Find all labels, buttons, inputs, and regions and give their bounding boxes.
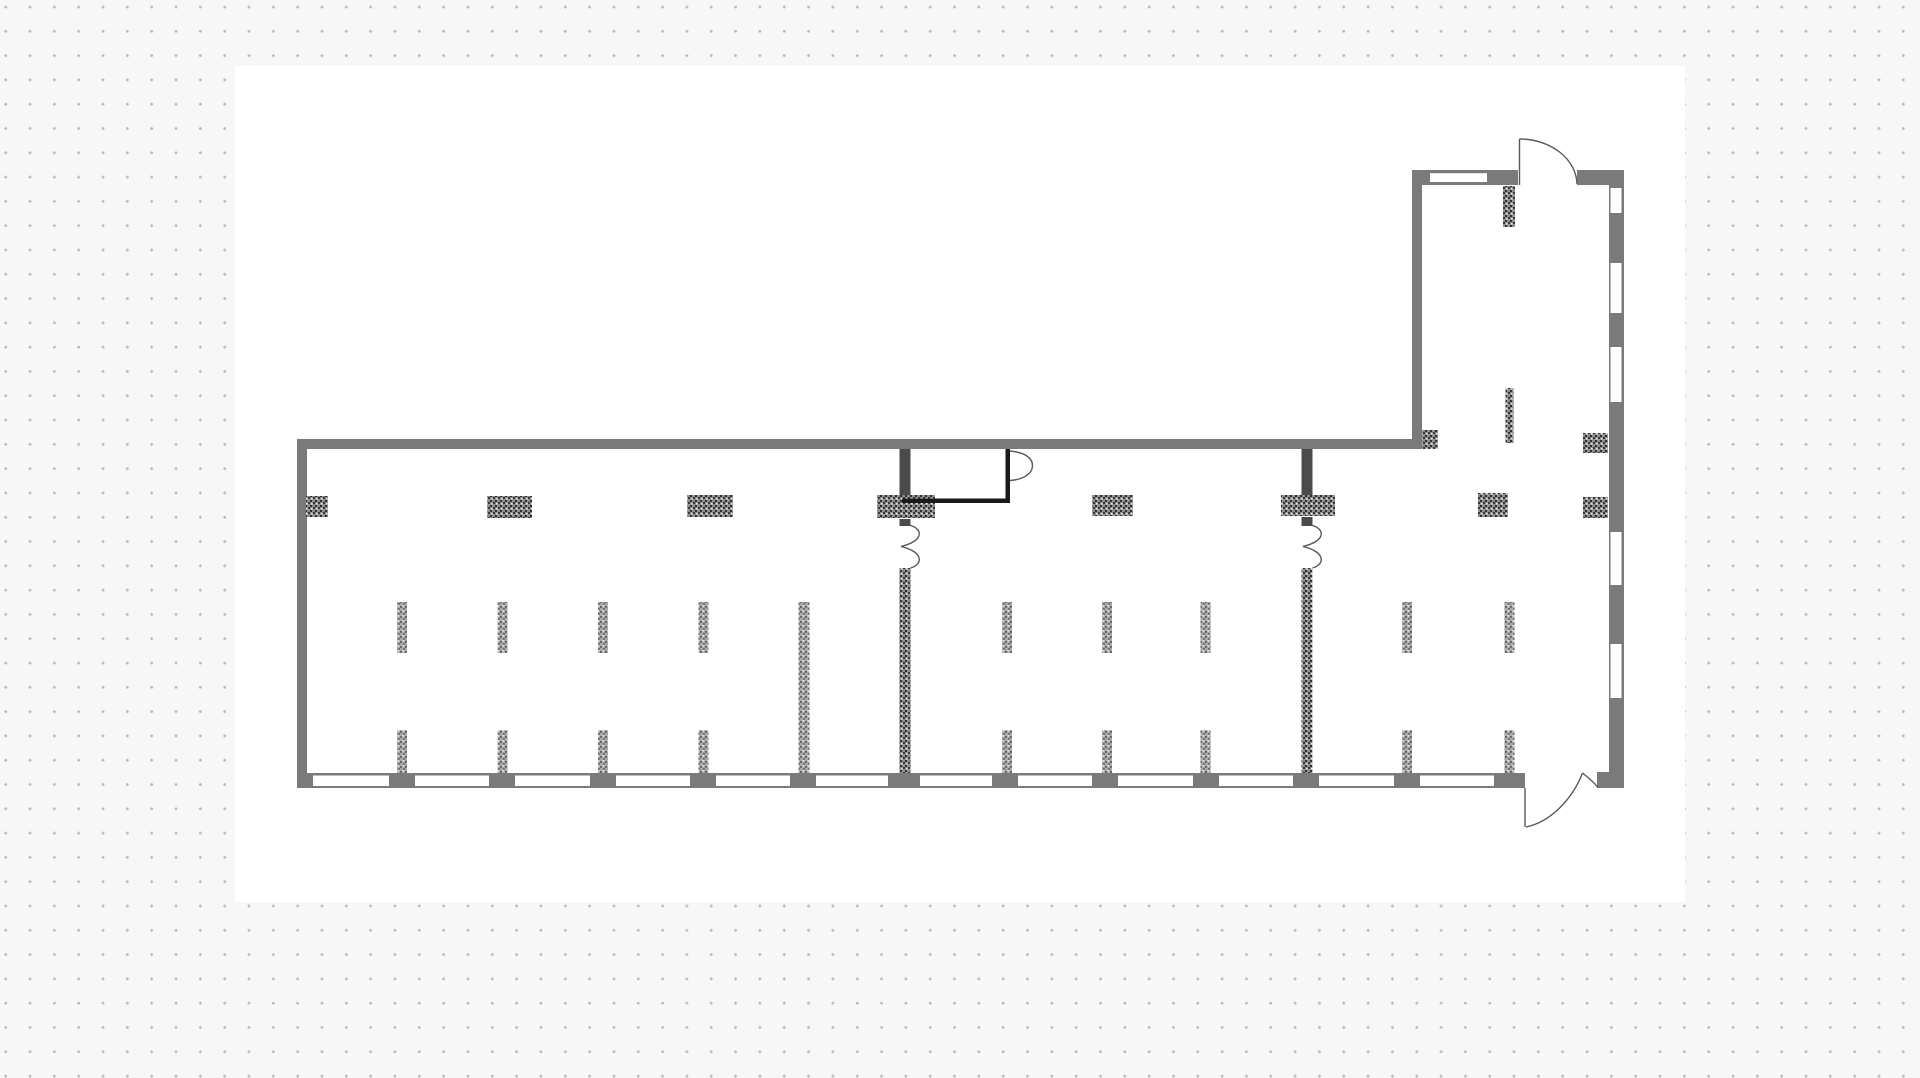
column-7[interactable] — [1478, 493, 1508, 517]
stub-upper-9[interactable] — [1505, 602, 1515, 653]
column-partition-2[interactable] — [1281, 495, 1335, 516]
inner-room-right-line[interactable] — [1006, 449, 1011, 503]
stub-upper-3[interactable] — [598, 602, 608, 653]
window-bottom-8[interactable] — [1018, 776, 1092, 787]
window-bottom-4[interactable] — [616, 776, 690, 787]
walls-layer — [297, 170, 1624, 788]
stub-upper-7[interactable] — [1201, 602, 1211, 653]
partition-2-door-arcs[interactable] — [1303, 526, 1321, 569]
window-right-5[interactable] — [1611, 644, 1622, 698]
windows-layer — [313, 173, 1622, 786]
stub-lower-8[interactable] — [1402, 730, 1412, 773]
window-bottom-7[interactable] — [920, 776, 992, 787]
annex-top-wall-right[interactable] — [1577, 170, 1624, 185]
window-bottom-2[interactable] — [415, 776, 489, 787]
exit-door-arc-2[interactable] — [1583, 773, 1599, 788]
partition-1-lower-wall[interactable] — [900, 568, 911, 773]
window-bottom-9[interactable] — [1118, 776, 1193, 787]
partition-2-lower-wall[interactable] — [1302, 568, 1313, 773]
stub-upper-5[interactable] — [1002, 602, 1012, 653]
stub-lower-5[interactable] — [1002, 730, 1012, 773]
stub-lower-1[interactable] — [397, 730, 407, 773]
floor-plan — [0, 0, 1920, 1078]
stub-tall[interactable] — [799, 602, 810, 773]
column-partition-1[interactable] — [877, 495, 935, 518]
partition-2-door-stub[interactable] — [1302, 517, 1313, 526]
inner-room-bottom-line[interactable] — [902, 499, 1010, 504]
window-right-2[interactable] — [1611, 263, 1622, 313]
column-right-wall[interactable] — [1583, 497, 1608, 518]
window-annex-top[interactable] — [1430, 173, 1487, 182]
stub-upper-4[interactable] — [699, 602, 709, 653]
stub-lower-9[interactable] — [1505, 730, 1515, 773]
stub-lower-4[interactable] — [699, 730, 709, 773]
column-5[interactable] — [1092, 495, 1133, 516]
exit-door-arc[interactable] — [1526, 773, 1583, 827]
annex-door-arc[interactable] — [1520, 139, 1578, 184]
window-right-1[interactable] — [1611, 188, 1622, 213]
window-bottom-11[interactable] — [1319, 776, 1394, 787]
annex-left-wall[interactable] — [1412, 170, 1422, 449]
window-bottom-3[interactable] — [515, 776, 590, 787]
annex-top-pier[interactable] — [1503, 186, 1515, 227]
partition-1-door-arcs[interactable] — [901, 526, 919, 569]
left-wall[interactable] — [297, 439, 307, 788]
room-divider-layer — [902, 449, 1010, 503]
annex-mid-pier[interactable] — [1506, 388, 1514, 443]
partition-2-upper[interactable] — [1302, 449, 1313, 496]
window-bottom-6[interactable] — [816, 776, 888, 787]
window-bottom-1[interactable] — [313, 776, 389, 787]
stub-lower-6[interactable] — [1102, 730, 1112, 773]
window-right-3[interactable] — [1611, 347, 1622, 402]
window-bottom-12[interactable] — [1420, 776, 1494, 787]
column-3[interactable] — [687, 495, 733, 517]
window-bottom-10[interactable] — [1219, 776, 1293, 787]
stub-upper-8[interactable] — [1402, 602, 1412, 653]
stub-lower-3[interactable] — [598, 730, 608, 773]
right-wall-foot[interactable] — [1597, 772, 1624, 788]
window-right-4[interactable] — [1611, 532, 1622, 585]
main-top-wall[interactable] — [298, 439, 1412, 449]
column-2[interactable] — [487, 496, 532, 518]
inner-room-door-arc[interactable] — [1010, 451, 1033, 481]
stub-upper-1[interactable] — [397, 602, 407, 653]
column-left-wall[interactable] — [306, 496, 328, 517]
column-annex-corner[interactable] — [1422, 430, 1438, 449]
partition-1-upper[interactable] — [900, 449, 911, 496]
partition-1-door-stub[interactable] — [900, 519, 911, 526]
stub-lower-7[interactable] — [1201, 730, 1211, 773]
column-annex-right[interactable] — [1583, 433, 1608, 453]
stub-lower-2[interactable] — [498, 730, 508, 773]
window-bottom-5[interactable] — [716, 776, 790, 787]
stub-upper-6[interactable] — [1102, 602, 1112, 653]
stub-upper-2[interactable] — [498, 602, 508, 653]
